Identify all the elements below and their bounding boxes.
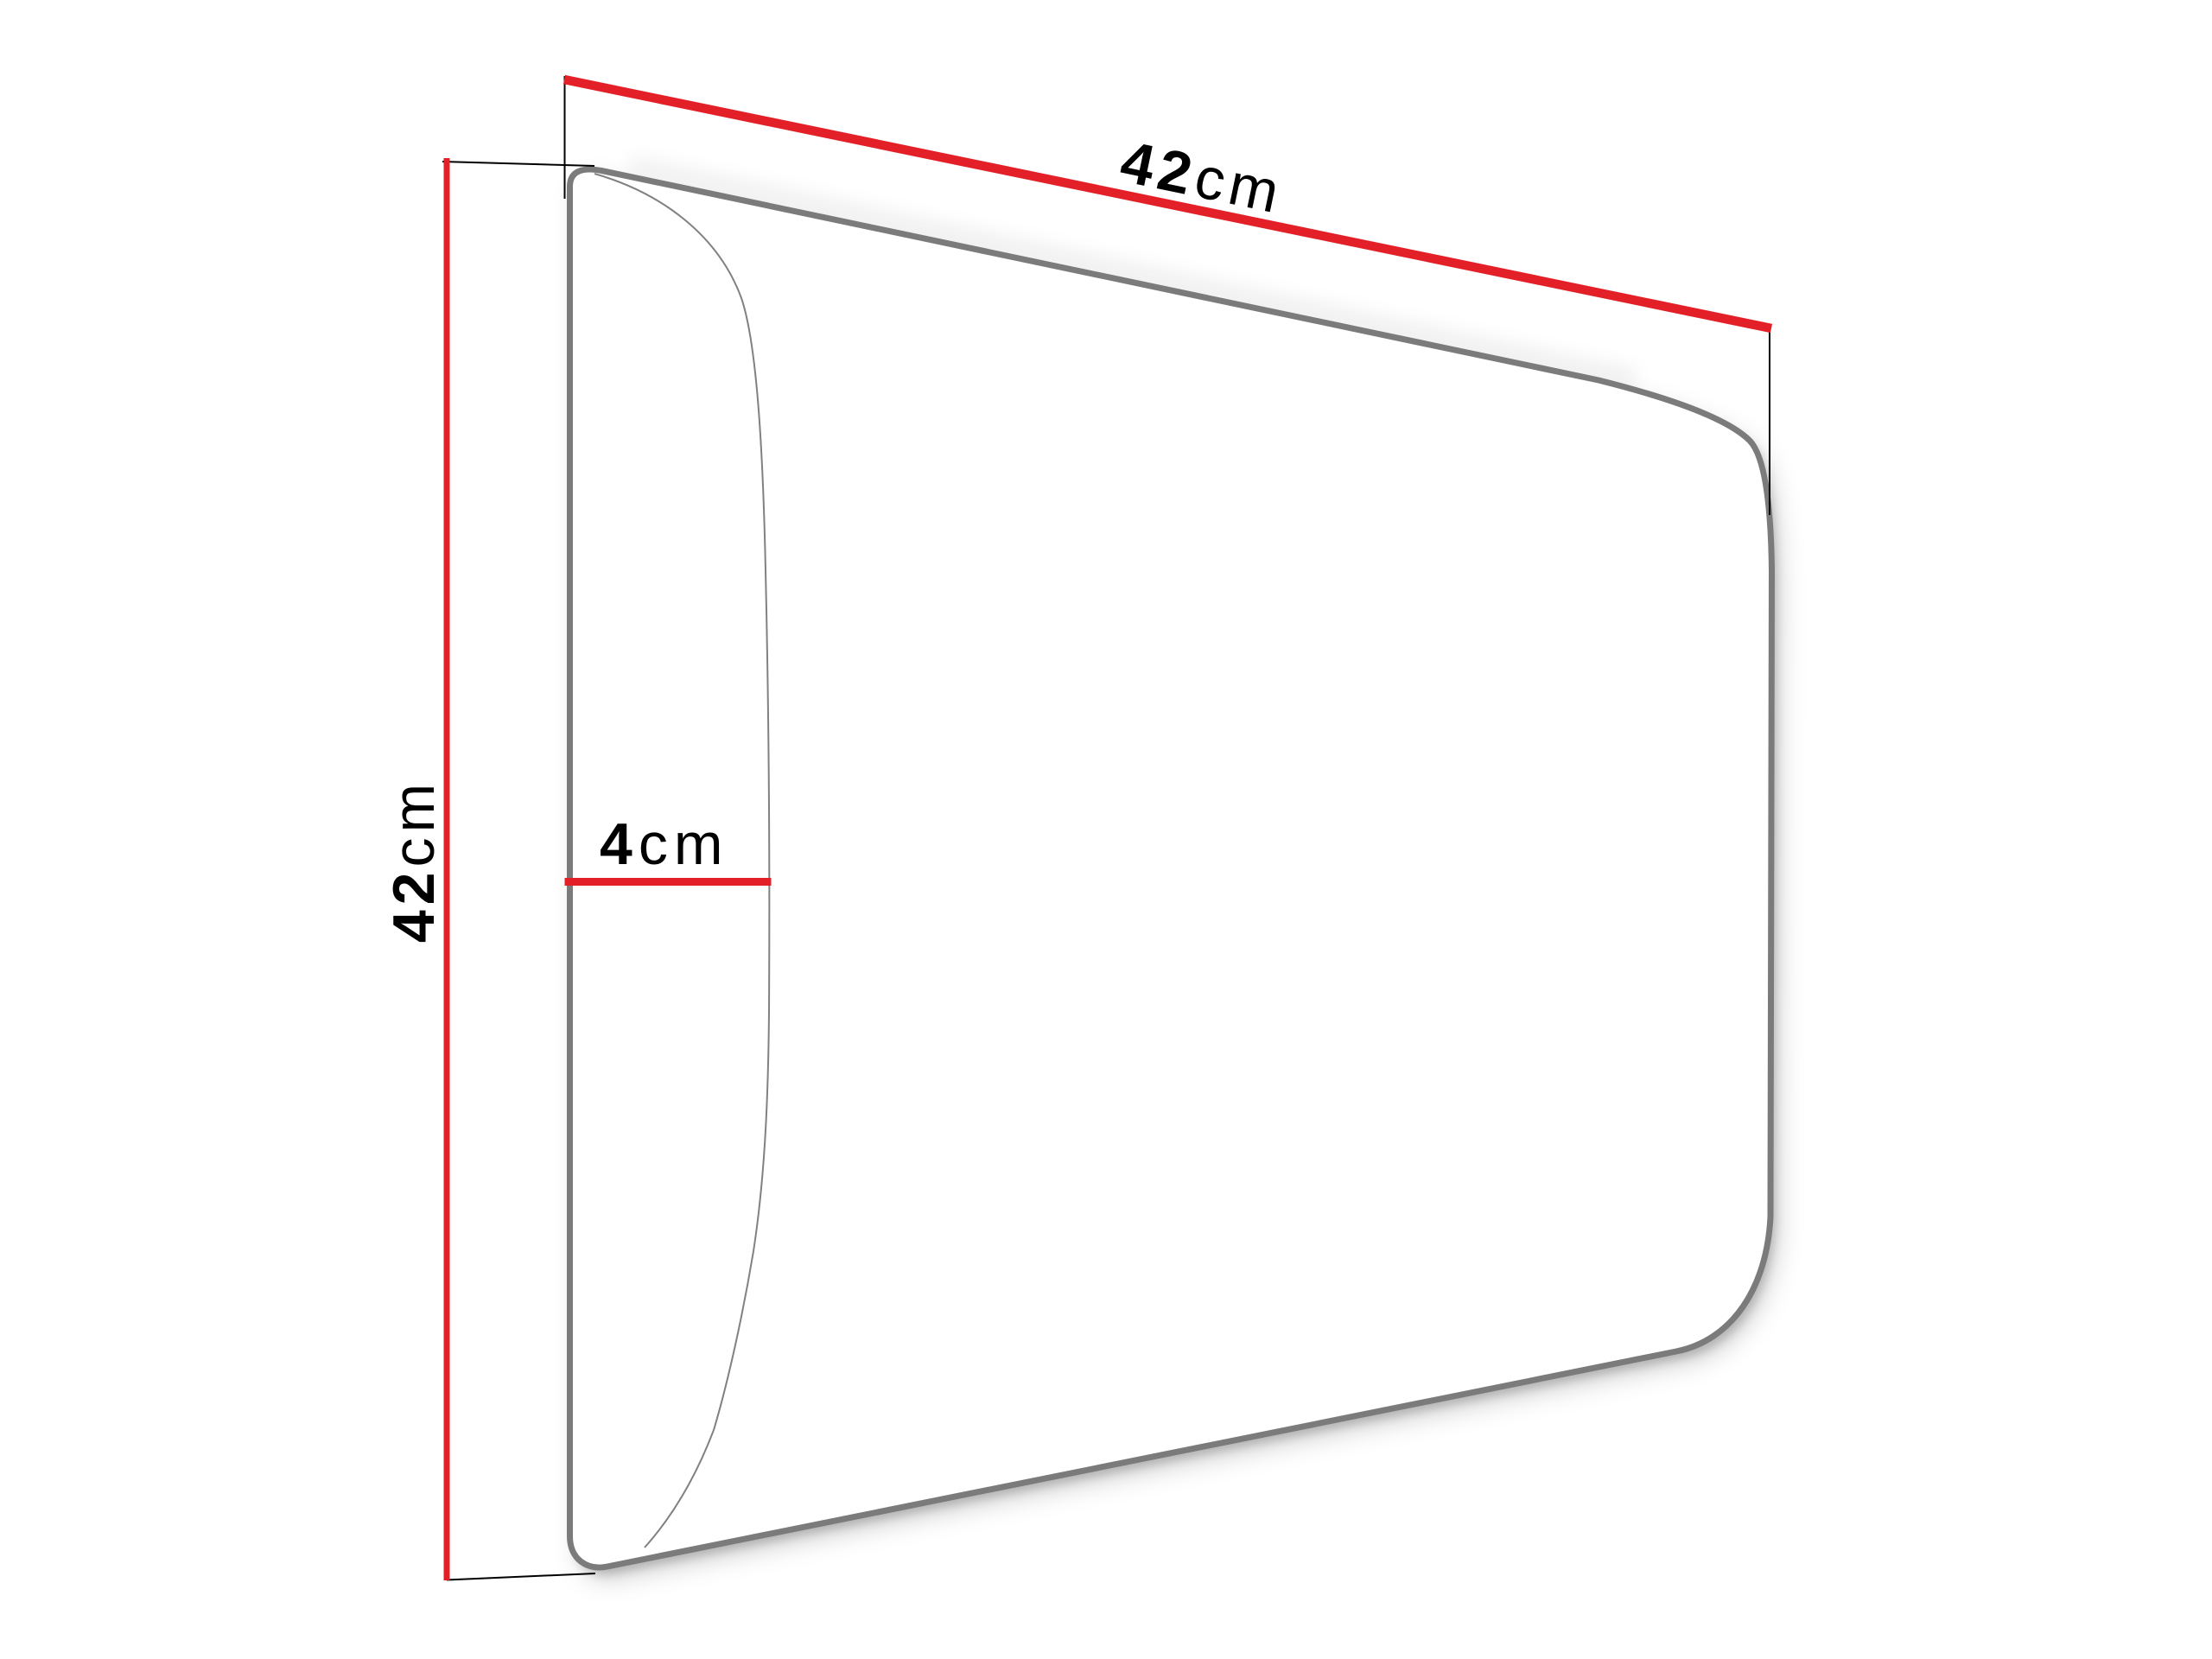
svg-text:4cm: 4cm [600, 811, 728, 877]
svg-text:42cm: 42cm [381, 779, 447, 943]
